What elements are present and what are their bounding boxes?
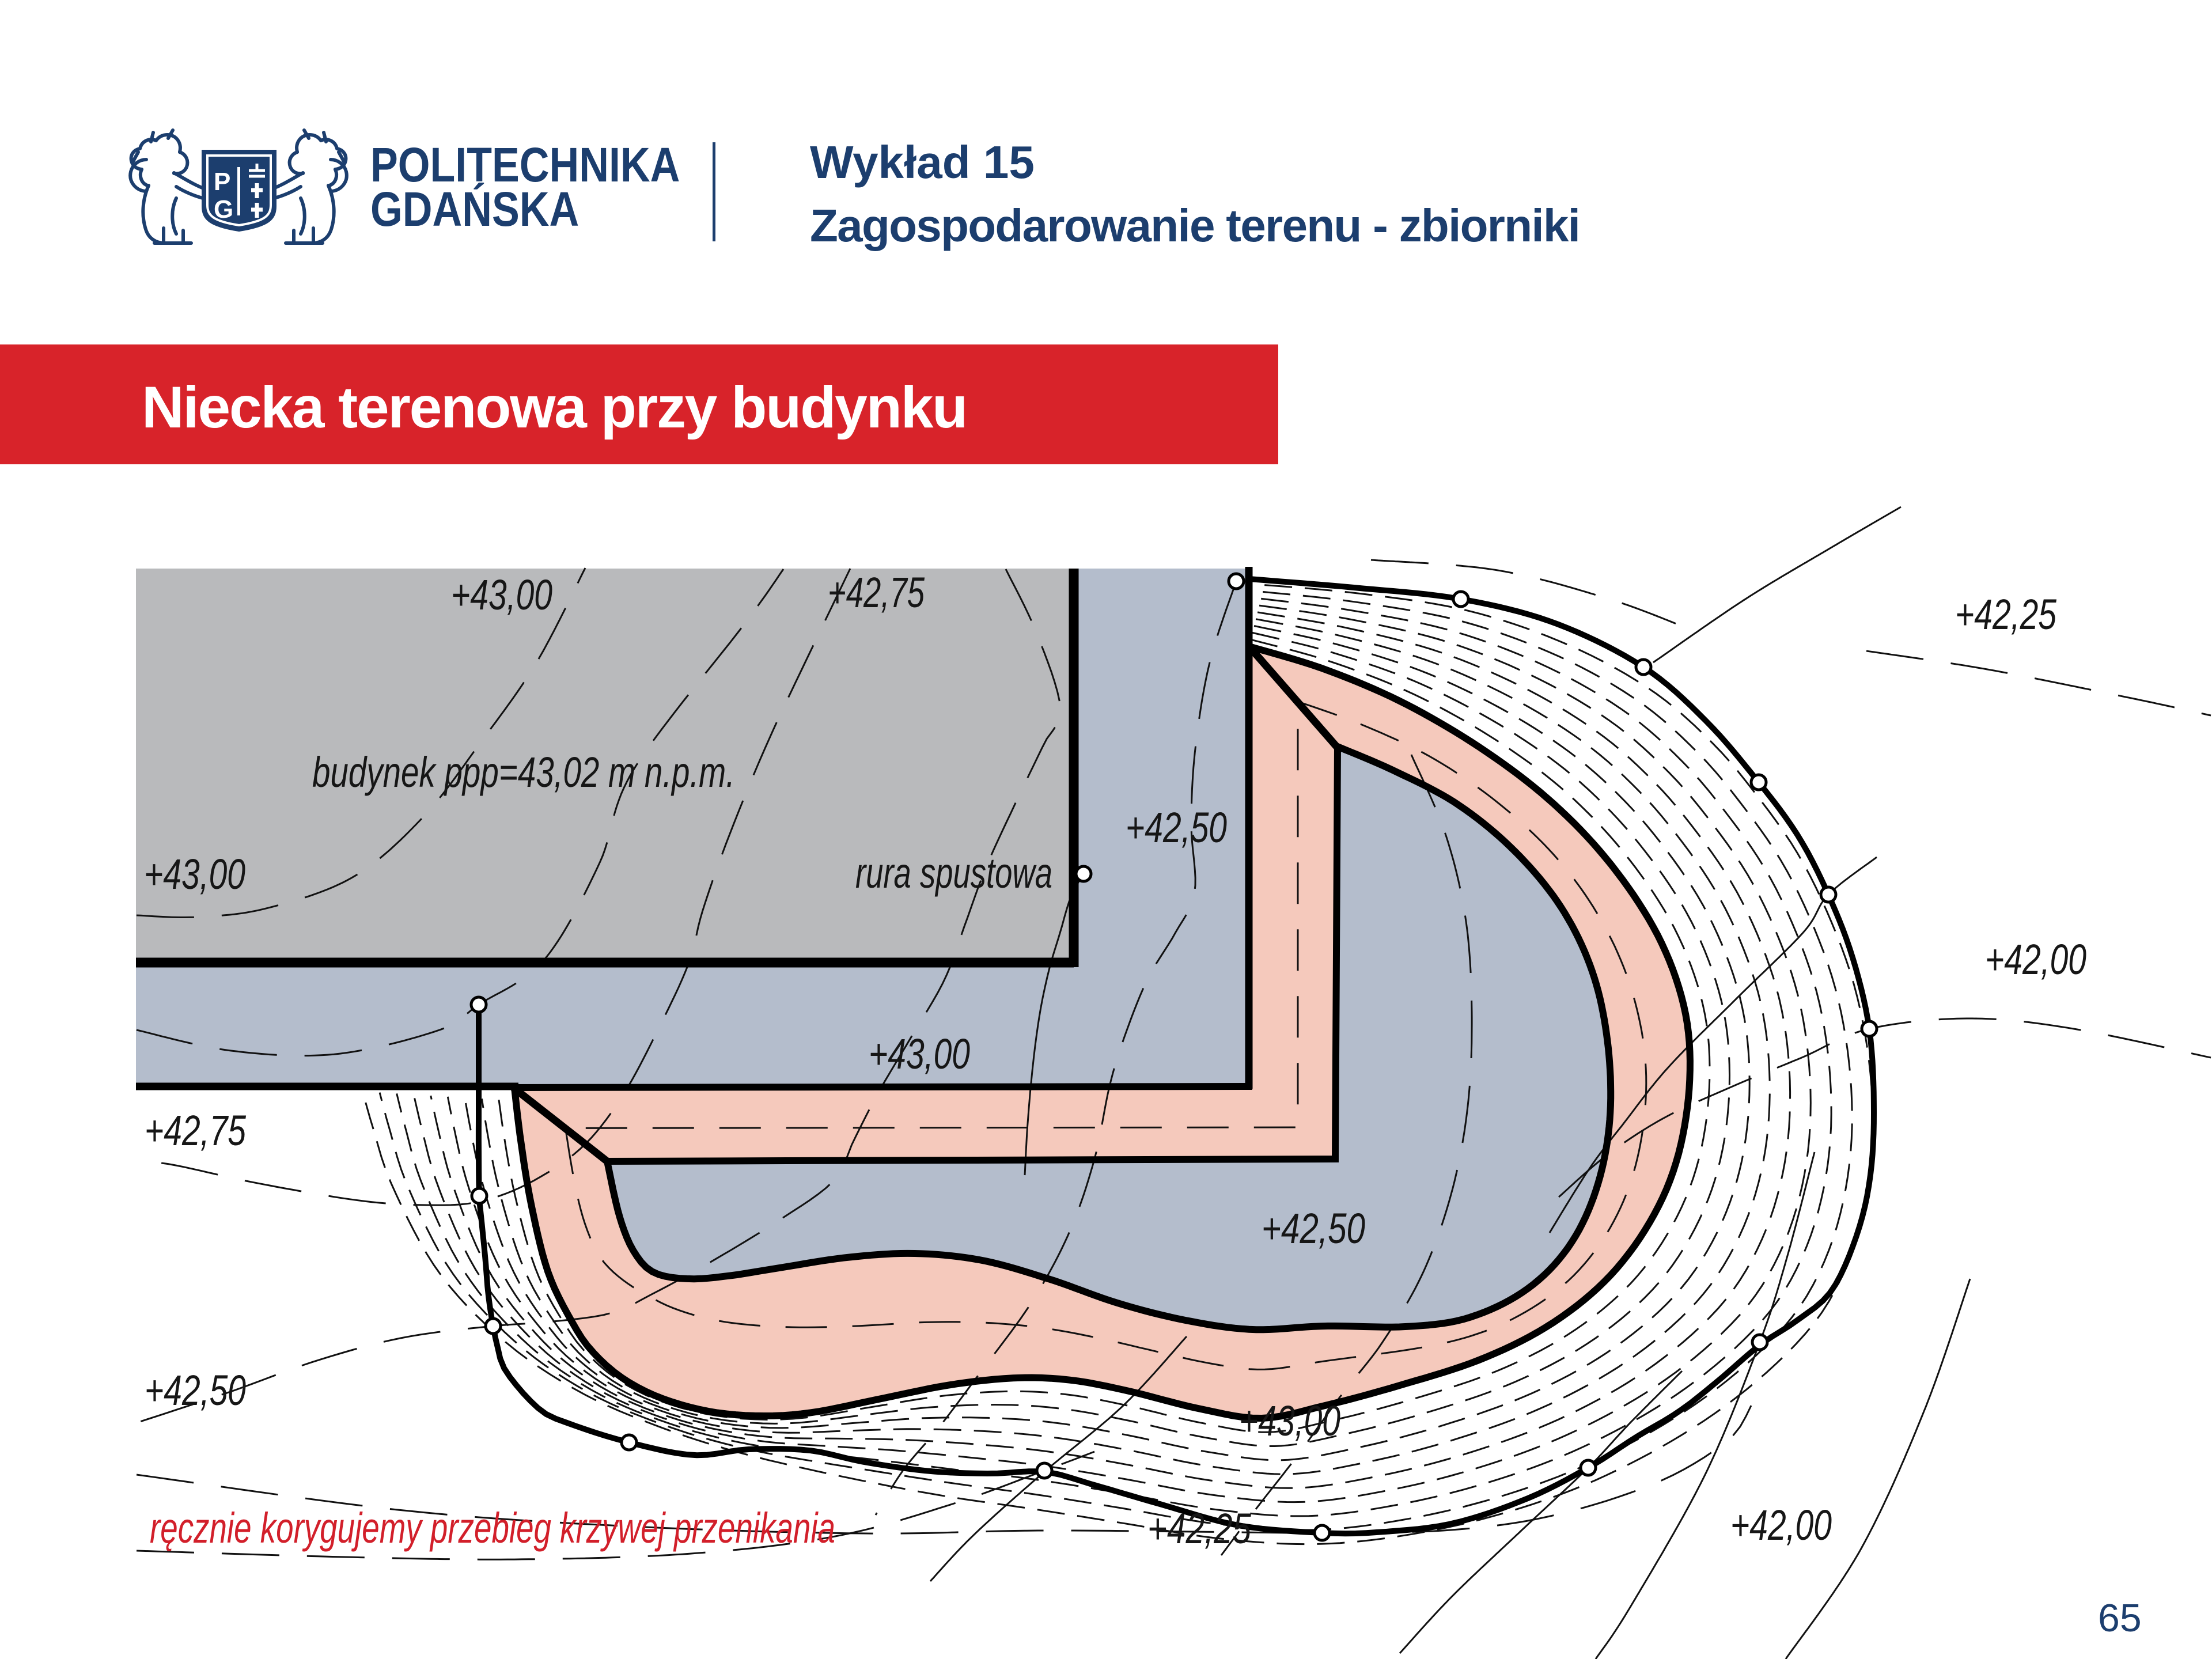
svg-text:ręcznie korygujemy przebieg: ręcznie korygujemy przebieg krzywej prze… — [150, 1504, 835, 1552]
svg-text:+42,75: +42,75 — [828, 569, 925, 616]
svg-text:+43,00: +43,00 — [869, 1030, 970, 1078]
svg-text:+42,50: +42,50 — [1126, 804, 1227, 851]
svg-text:budynek ppp=43,02 m n.p.m.: budynek ppp=43,02 m n.p.m. — [312, 748, 735, 796]
svg-text:+42,25: +42,25 — [1147, 1505, 1252, 1552]
svg-text:+42,75: +42,75 — [145, 1107, 247, 1154]
svg-text:+43,00: +43,00 — [144, 850, 245, 898]
svg-text:+42,25: +42,25 — [1955, 590, 2057, 638]
svg-text:rura spustowa: rura spustowa — [855, 849, 1052, 897]
svg-text:+43,00: +43,00 — [1239, 1397, 1340, 1445]
svg-text:+42,50: +42,50 — [145, 1366, 246, 1414]
svg-text:+43,00: +43,00 — [451, 571, 552, 619]
svg-text:+42,00: +42,00 — [1985, 935, 2086, 983]
svg-text:+42,00: +42,00 — [1730, 1501, 1832, 1549]
svg-text:+42,50: +42,50 — [1262, 1205, 1365, 1252]
